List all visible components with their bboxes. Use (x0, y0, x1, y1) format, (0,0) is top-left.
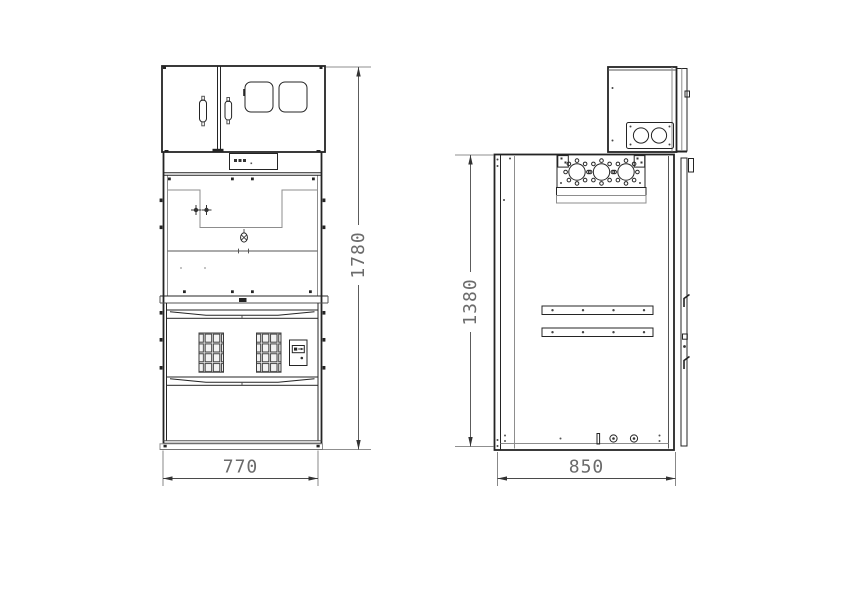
wall-bolt-marks (160, 199, 326, 370)
cabinet-foot (165, 150, 169, 152)
dimension-side-depth: 850 (498, 452, 676, 486)
keyhole-indicator (241, 229, 248, 242)
bushing (588, 159, 614, 185)
ventilation-grid (257, 333, 282, 372)
front-width-value: 770 (223, 457, 259, 478)
mounting-rail-upper (542, 306, 653, 315)
panel-lower-bar (557, 188, 647, 196)
panel-lower-bar (557, 196, 647, 204)
door-handle-bar-top (167, 310, 319, 318)
inspection-window (245, 82, 273, 112)
cable-gland-plate (627, 123, 674, 149)
dimension-front-height: 1780 (160, 67, 371, 450)
cabinet-foot (213, 149, 224, 152)
window-latch-mark (243, 89, 245, 96)
base-bolt (164, 445, 167, 448)
top-box-outline (608, 67, 677, 152)
side-view: 850 1380 (455, 67, 694, 486)
side-body (495, 155, 675, 451)
bottom-fittings (504, 434, 661, 445)
arrowhead (309, 476, 319, 480)
panel-bracket (558, 156, 569, 168)
operation-indicator (202, 205, 212, 215)
mounting-rail-lower (542, 328, 653, 337)
bolt-row-lower (183, 290, 312, 293)
bushing (564, 159, 590, 185)
side-height-value: 1380 (460, 278, 481, 325)
side-top-box (608, 67, 690, 152)
corner-mark (163, 67, 166, 70)
left-door-handle (200, 96, 207, 126)
arrowhead (356, 440, 360, 450)
front-body (160, 152, 328, 444)
wall-bolt-dots (497, 158, 512, 448)
side-door-strip (681, 158, 694, 446)
top-cabinet-outline (162, 66, 325, 152)
technical-drawing-canvas: 770 1780 (0, 0, 848, 600)
arrowhead (163, 476, 173, 480)
door-lock (290, 340, 308, 366)
door-bracket (689, 159, 694, 173)
arrowhead (666, 476, 676, 480)
arrowhead (468, 155, 472, 165)
inspection-window (279, 82, 307, 112)
lower-seam-band (160, 296, 328, 303)
rivet-mark (204, 267, 206, 269)
bushing (613, 159, 639, 185)
dimension-front-width: 770 (163, 451, 318, 487)
nameplate (230, 154, 278, 170)
bolt-row-upper (168, 178, 315, 181)
switchgear-two-view-drawing: 770 1780 (0, 0, 848, 600)
bus-compartment-seam (168, 190, 318, 228)
ventilation-grid (199, 333, 224, 372)
front-lower-door (160, 303, 323, 450)
bushing-panel (557, 155, 647, 204)
side-depth-value: 850 (569, 457, 605, 478)
latch-dot (683, 345, 686, 348)
side-body-outline (495, 155, 675, 451)
arrowhead (356, 67, 360, 77)
corner-mark (320, 67, 323, 70)
base-bolt (317, 445, 320, 448)
door-handle-bar-bottom (167, 377, 319, 385)
base-plinth (160, 444, 323, 450)
front-top-cabinet (162, 66, 325, 152)
cabinet-foot (317, 150, 321, 152)
dimension-side-height: 1380 (455, 155, 494, 447)
arrowhead (468, 437, 472, 447)
front-height-value: 1780 (348, 231, 369, 278)
front-view: 770 1780 (160, 66, 371, 486)
rivet-mark (180, 267, 182, 269)
arrowhead (498, 476, 508, 480)
right-door-handle (225, 98, 232, 124)
